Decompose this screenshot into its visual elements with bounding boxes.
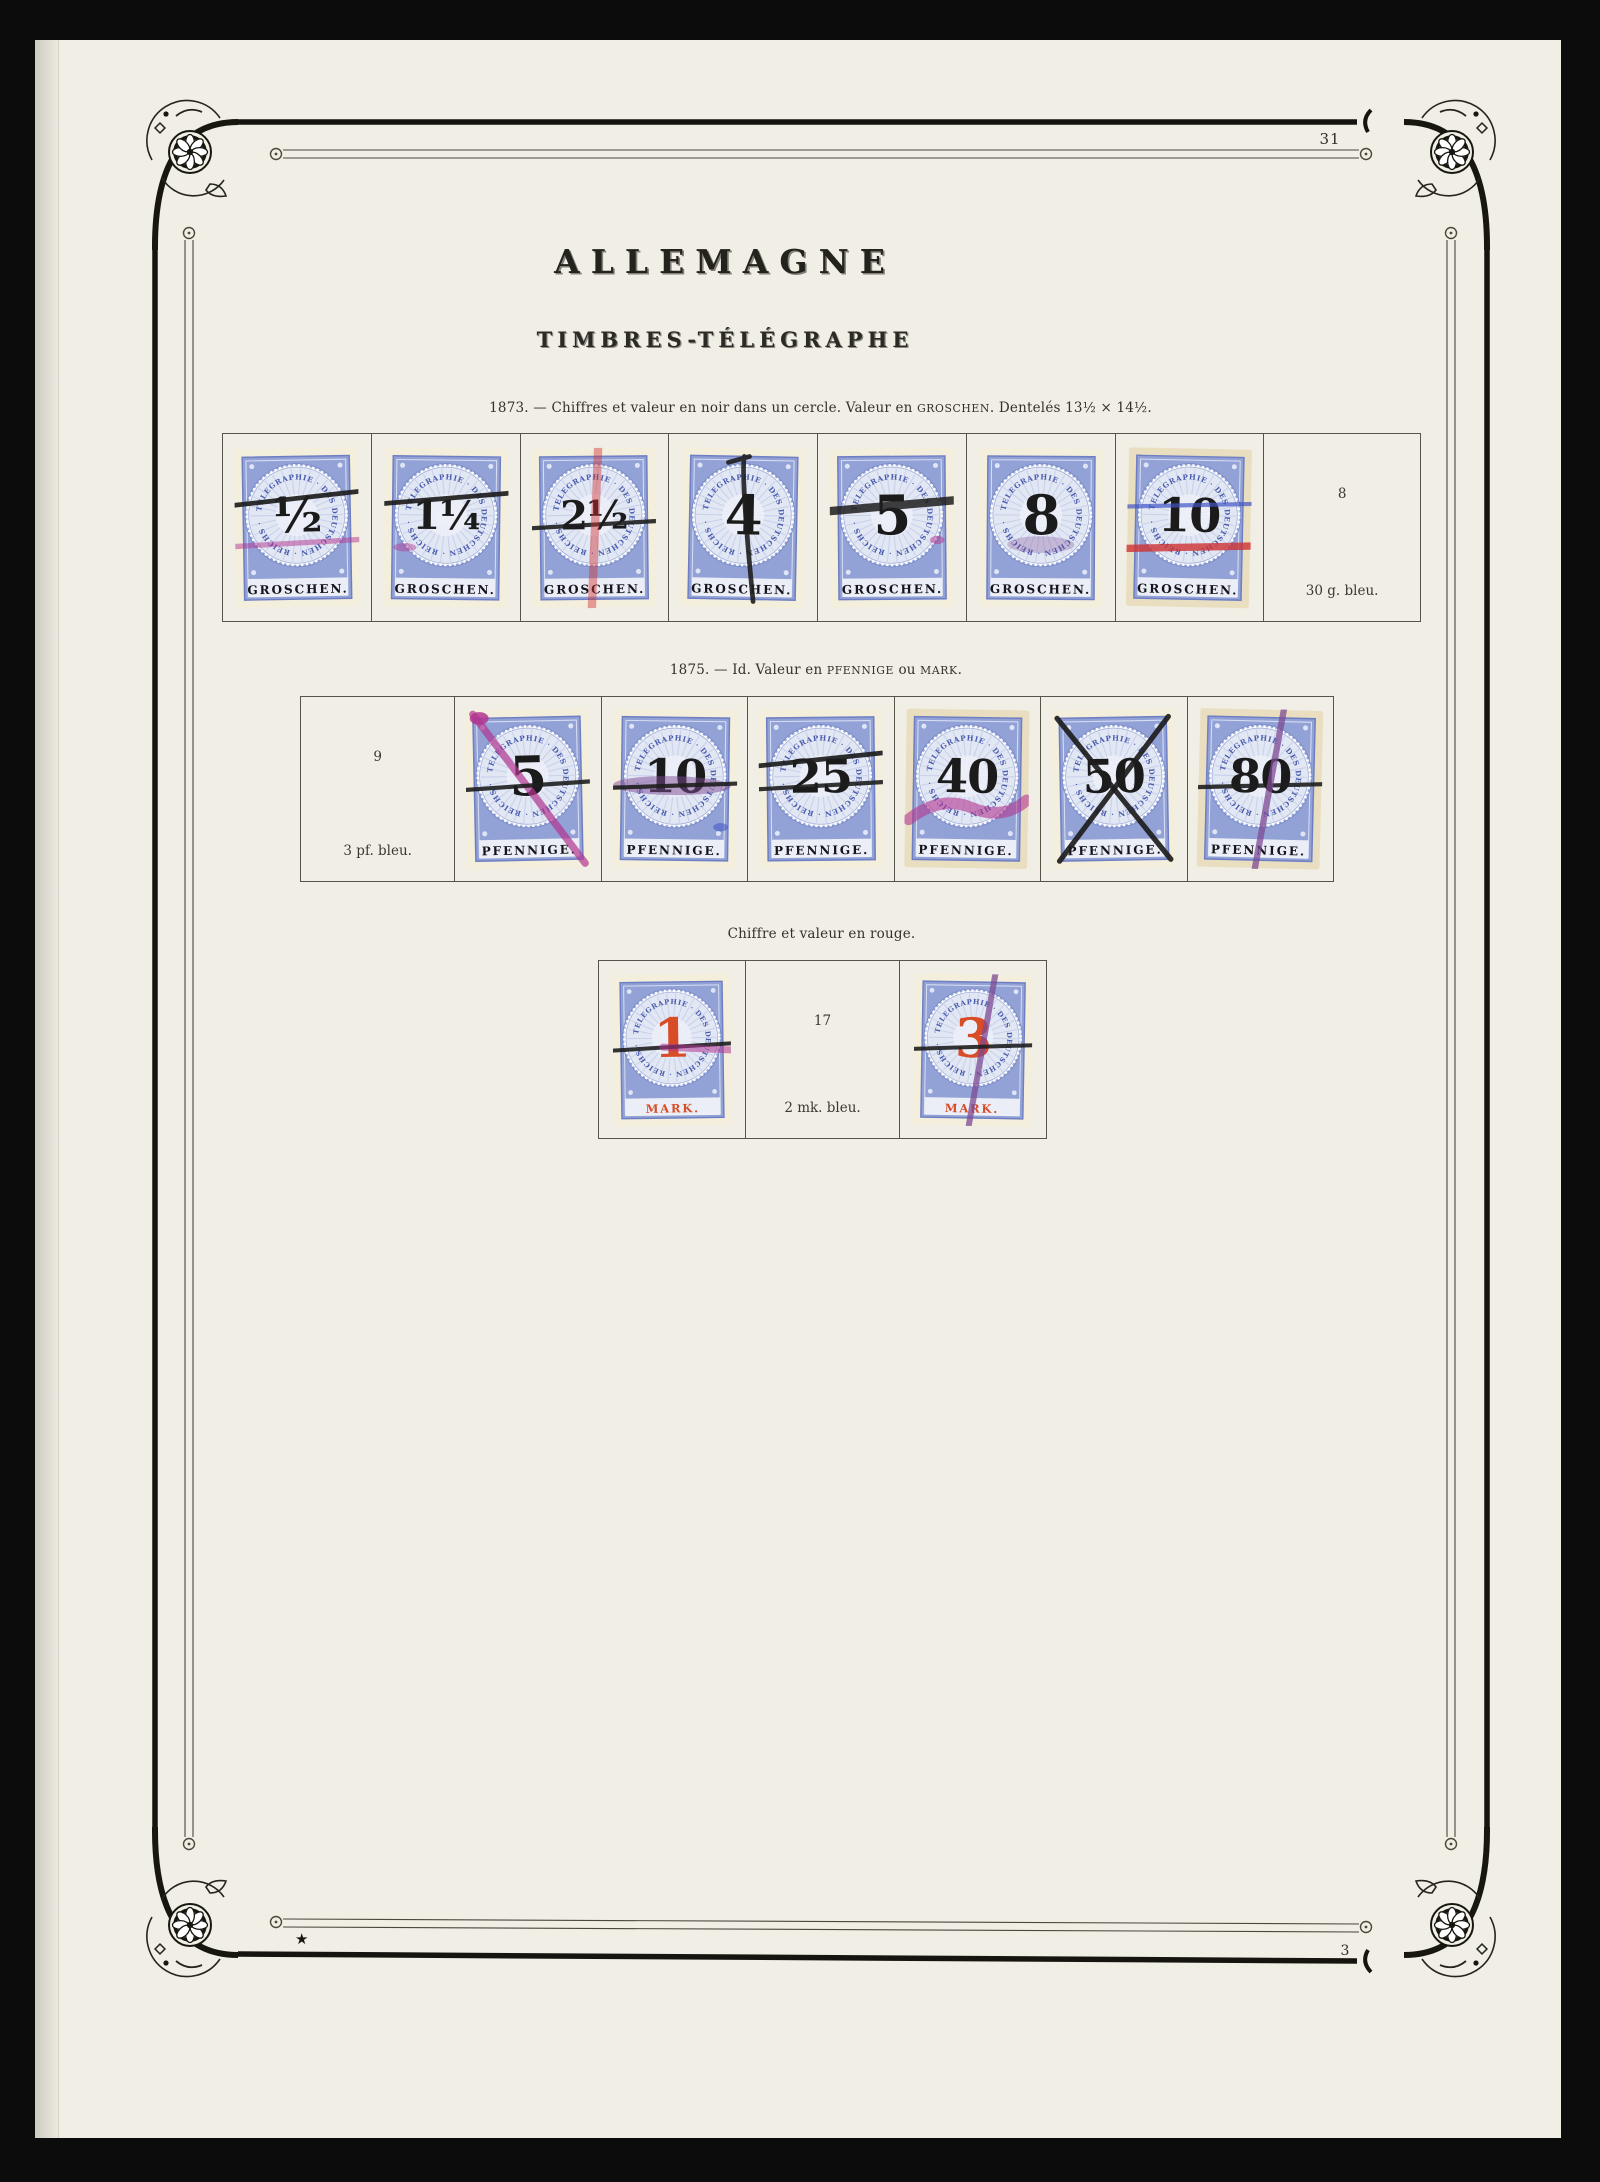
stamp-unit-label: PFENNIGE. (482, 843, 578, 859)
telegraph-stamp: TELEGRAPHIE · DES DEUTSCHEN · REICHS · 2… (532, 447, 658, 608)
stamp-unit-label: PFENNIGE. (1067, 843, 1162, 859)
telegraph-stamp: TELEGRAPHIE · DES DEUTSCHEN · REICHS · ½… (234, 447, 361, 609)
stamp-cell: TELEGRAPHIE · DES DEUTSCHEN · REICHS · 1… (1116, 434, 1265, 621)
telegraph-stamp: TELEGRAPHIE · DES DEUTSCHEN · REICHS · 5… (829, 447, 954, 608)
section-caption: 1875. — Id. Valeur en pfennige ou mark. (300, 662, 1332, 678)
stamp-cell: TELEGRAPHIE · DES DEUTSCHEN · REICHS · 4… (669, 434, 818, 621)
telegraph-stamp: TELEGRAPHIE · DES DEUTSCHEN · REICHS · 8… (1196, 708, 1324, 871)
stamp-cell: TELEGRAPHIE · DES DEUTSCHEN · REICHS · 2… (748, 697, 894, 881)
stamp-cell: TELEGRAPHIE · DES DEUTSCHEN · REICHS · 4… (895, 697, 1041, 881)
caption-text: pfennige (827, 664, 894, 677)
telegraph-stamp: TELEGRAPHIE · DES DEUTSCHEN · REICHS · 5… (1050, 708, 1177, 870)
stamp-cell: TELEGRAPHIE · DES DEUTSCHEN · REICHS · 3… (900, 961, 1046, 1138)
stamp-value-numeral: 40 (936, 749, 999, 804)
telegraph-stamp: TELEGRAPHIE · DES DEUTSCHEN · REICHS · 1… (383, 447, 509, 608)
missing-stamp-note: 2 mk. bleu. (784, 1100, 860, 1116)
stamp-unit-label: GROSCHEN. (247, 581, 348, 597)
caption-text: Chiffre et valeur en rouge. (728, 926, 916, 942)
telegraph-stamp: TELEGRAPHIE · DES DEUTSCHEN · REICHS · 4… (904, 708, 1030, 870)
caption-text: groschen (917, 402, 990, 415)
page-number-bottom: 3 (1320, 1943, 1370, 1959)
stamp-unit-label: GROSCHEN. (990, 582, 1091, 597)
caption-text: 1875. — Id. Valeur en (670, 662, 827, 678)
telegraph-stamp: TELEGRAPHIE · DES DEUTSCHEN · REICHS · 8… (978, 447, 1103, 607)
telegraph-stamp: TELEGRAPHIE · DES DEUTSCHEN · REICHS · 1… (1126, 446, 1253, 608)
catalog-number: 9 (373, 749, 382, 765)
stamp-unit-label: MARK. (645, 1101, 699, 1116)
stamp-cell: TELEGRAPHIE · DES DEUTSCHEN · REICHS · 8… (967, 434, 1116, 621)
stamp-unit-label: PFENNIGE. (919, 843, 1014, 858)
caption-text: 1873. — Chiffres et valeur en noir dans … (489, 400, 917, 416)
stamp-cell: TELEGRAPHIE · DES DEUTSCHEN · REICHS · 5… (818, 434, 967, 621)
stamps-table: TELEGRAPHIE · DES DEUTSCHEN · REICHS · 1… (598, 960, 1047, 1139)
caption-text: ou (894, 662, 920, 678)
stamp-cell: TELEGRAPHIE · DES DEUTSCHEN · REICHS · 5… (1041, 697, 1187, 881)
stamp-unit-label: GROSCHEN. (394, 581, 495, 596)
missing-stamp-note: 3 pf. bleu. (343, 843, 412, 859)
page-title: ALLEMAGNE (425, 242, 1025, 281)
stamp-unit-label: GROSCHEN. (842, 582, 943, 597)
catalog-number: 8 (1338, 486, 1347, 502)
stamp-cell: TELEGRAPHIE · DES DEUTSCHEN · REICHS · ½… (223, 434, 372, 621)
stamp-unit-label: PFENNIGE. (774, 843, 869, 858)
scanned-album-page-photo: 31 3 ★ ALLEMAGNE TIMBRES-TÉLÉGRAPHE 1873… (0, 0, 1600, 2182)
stamp-unit-label: GROSCHEN. (691, 581, 792, 597)
caption-text: . Dentelés 13½ × 14½. (990, 400, 1152, 416)
stamp-cell: TELEGRAPHIE · DES DEUTSCHEN · REICHS · 2… (521, 434, 670, 621)
stamps-table: 9 3 pf. bleu. TELEGRAPHIE · DES DEUTSCHE… (300, 696, 1334, 882)
page-subtitle: TIMBRES-TÉLÉGRAPHE (425, 327, 1025, 352)
stamp-unit-label: GROSCHEN. (1137, 581, 1238, 597)
stamp-value-numeral: 1 (653, 1005, 690, 1070)
star-mark: ★ (295, 1930, 308, 1948)
caption-text: mark (920, 664, 957, 677)
stamp-value-numeral: 10 (1158, 487, 1221, 542)
page-fold-line (58, 40, 59, 2138)
catalog-number: 17 (814, 1013, 831, 1029)
stamp-value-numeral: 5 (873, 483, 910, 547)
catalog-note-cell: 9 3 pf. bleu. (301, 697, 455, 881)
stamp-cell: TELEGRAPHIE · DES DEUTSCHEN · REICHS · 8… (1188, 697, 1333, 881)
stamp-cell: TELEGRAPHIE · DES DEUTSCHEN · REICHS · 1… (372, 434, 521, 621)
stamp-value-numeral: 80 (1229, 749, 1292, 805)
telegraph-stamp: TELEGRAPHIE · DES DEUTSCHEN · REICHS · 1… (612, 708, 738, 869)
telegraph-stamp: TELEGRAPHIE · DES DEUTSCHEN · REICHS · 1… (612, 973, 732, 1127)
stamp-cell: TELEGRAPHIE · DES DEUTSCHEN · REICHS · 1… (599, 961, 746, 1138)
stamp-unit-label: PFENNIGE. (626, 843, 721, 858)
section-caption: Chiffre et valeur en rouge. (598, 926, 1045, 942)
catalog-note-cell: 8 30 g. bleu. (1264, 434, 1420, 621)
album-page: 31 3 ★ ALLEMAGNE TIMBRES-TÉLÉGRAPHE 1873… (35, 40, 1561, 2138)
caption-text: . (958, 662, 963, 678)
section-caption: 1873. — Chiffres et valeur en noir dans … (222, 400, 1419, 416)
stamp-cell: TELEGRAPHIE · DES DEUTSCHEN · REICHS · 1… (602, 697, 748, 881)
telegraph-stamp: TELEGRAPHIE · DES DEUTSCHEN · REICHS · 3… (913, 972, 1034, 1126)
stamps-table: TELEGRAPHIE · DES DEUTSCHEN · REICHS · ½… (222, 433, 1421, 622)
missing-stamp-note: 30 g. bleu. (1306, 583, 1379, 599)
stamp-cell: TELEGRAPHIE · DES DEUTSCHEN · REICHS · 5… (455, 697, 601, 881)
page-number-top: 31 (1300, 130, 1360, 148)
catalog-note-cell: 17 2 mk. bleu. (746, 961, 901, 1138)
telegraph-stamp: TELEGRAPHIE · DES DEUTSCHEN · REICHS · 2… (758, 709, 884, 870)
telegraph-stamp: TELEGRAPHIE · DES DEUTSCHEN · REICHS · 4… (680, 447, 807, 609)
telegraph-stamp: TELEGRAPHIE · DES DEUTSCHEN · REICHS · 5… (465, 708, 592, 870)
